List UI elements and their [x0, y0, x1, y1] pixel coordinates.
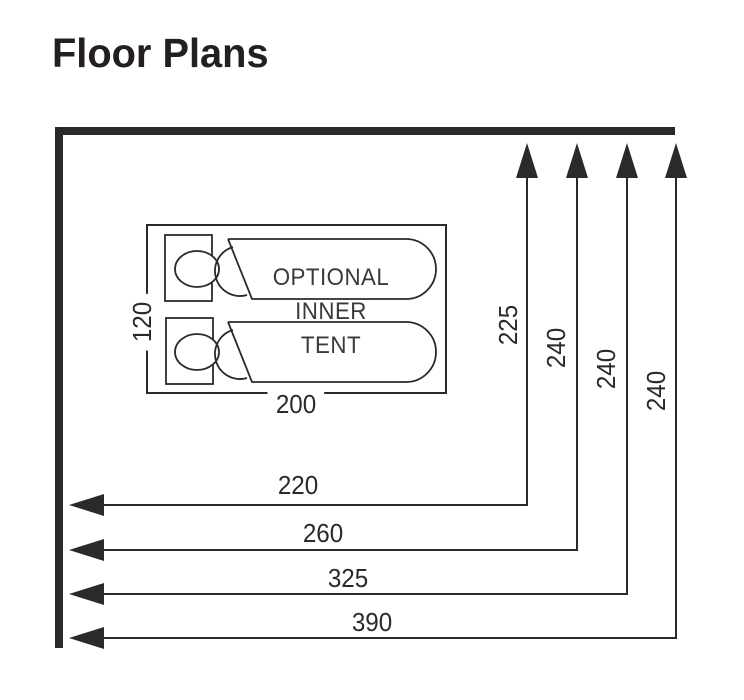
- arrowhead-up-icon: [566, 143, 588, 178]
- inner-tent-width-label: 200: [267, 389, 324, 419]
- dimension-line: [103, 177, 676, 638]
- inner-tent-depth-label: 120: [127, 293, 157, 350]
- arrowhead-left-icon: [69, 539, 104, 561]
- arrowhead-up-icon: [516, 143, 538, 178]
- floor-plan-page: Floor Plans: [0, 0, 744, 700]
- inner-tent-label-line2: INNER: [273, 295, 390, 329]
- arrowhead-left-icon: [69, 583, 104, 605]
- horizontal-dimension-label-4: 390: [352, 609, 392, 635]
- inner-tent-label: OPTIONAL INNER TENT: [273, 261, 390, 363]
- sleeping-bag-fold-arc-icon: [215, 247, 247, 296]
- sleeping-bag-fold-arc-icon: [215, 330, 247, 379]
- vertical-dimension-label-2: 240: [543, 328, 569, 368]
- sleeper-head-icon: [175, 251, 219, 287]
- horizontal-dimension-label-2: 260: [303, 520, 343, 546]
- dimension-line-325-240: [69, 143, 638, 605]
- arrowhead-up-icon: [665, 143, 687, 178]
- sleeper-head-icon: [175, 334, 219, 370]
- vertical-dimension-label-1: 225: [495, 305, 521, 345]
- dimension-line: [103, 177, 577, 550]
- dimension-line-390-240: [69, 143, 687, 649]
- horizontal-dimension-label-3: 325: [328, 565, 368, 591]
- inner-tent-label-line1: OPTIONAL: [273, 261, 390, 295]
- inner-tent-label-line3: TENT: [273, 329, 390, 363]
- arrowhead-left-icon: [69, 627, 104, 649]
- arrowhead-left-icon: [69, 494, 104, 516]
- horizontal-dimension-label-1: 220: [278, 472, 318, 498]
- vertical-dimension-label-3: 240: [593, 349, 619, 389]
- arrowhead-up-icon: [616, 143, 638, 178]
- vertical-dimension-label-4: 240: [643, 371, 669, 411]
